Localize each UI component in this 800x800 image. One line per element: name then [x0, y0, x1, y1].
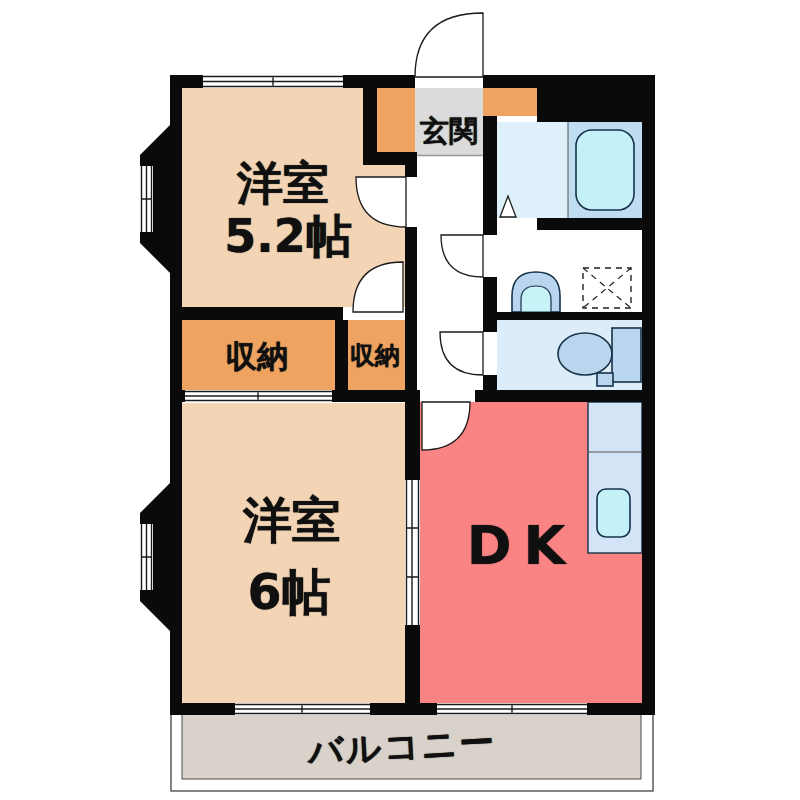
wall-bottom-c [587, 703, 655, 715]
kitchen-sink [597, 489, 630, 537]
wall-hall-right-b [483, 277, 497, 332]
wall-bottom-a [170, 703, 235, 715]
wall-washroom-bottom [483, 312, 642, 320]
wall-hall-left-b [405, 227, 417, 307]
wall-storage-right [405, 307, 417, 390]
bathtub [576, 130, 634, 210]
vanity-basin [521, 286, 551, 312]
wall-left-lower [170, 625, 182, 715]
wall-left-mid [170, 266, 182, 488]
storage-left-label: 収納 [226, 341, 288, 372]
dk-label: DK [467, 519, 578, 573]
wall-dk-b [405, 625, 420, 703]
bedroom52-label-line1: 洋室 [237, 160, 329, 206]
wall-top-right [483, 75, 655, 88]
wall-top-mid [343, 75, 415, 88]
toilet-tank [612, 328, 641, 382]
entry-shoe-cabinet-left [377, 88, 415, 152]
floor-plan: 洋室 5.2帖 玄関 収納 収納 洋室 6帖 DK バルコニー [0, 0, 800, 800]
entry-shoe-cabinet-right [483, 88, 537, 116]
wall-storage-divider [335, 320, 348, 390]
dk-door-sill [420, 390, 475, 402]
entry-door-swing [415, 13, 483, 77]
bedroom6-label-line1: 洋室 [243, 496, 341, 545]
washroom-door-leaf [483, 235, 497, 277]
floor-plan-drawing [0, 0, 800, 800]
bedroom-6-floor [182, 403, 405, 703]
wall-storage-top [170, 307, 343, 320]
bathroom-door-sill [497, 218, 537, 230]
wall-bottom-b [370, 703, 437, 715]
wall-hall-right-c [483, 375, 497, 390]
wall-mid-c [475, 390, 642, 402]
toilet-handle [597, 373, 613, 386]
bedroom52-label-line2: 5.2帖 [224, 213, 352, 259]
wall-right [642, 75, 655, 715]
wall-entry-stub [363, 152, 417, 165]
wall-hall-right-a [483, 116, 497, 235]
wall-mid-a [170, 390, 185, 402]
balcony-label: バルコニー [307, 725, 497, 770]
bedroom6-label-line2: 6帖 [247, 568, 330, 617]
wall-block-top-right [537, 88, 655, 122]
storage-right-label: 収納 [350, 343, 400, 368]
wall-hall-left-a [405, 165, 417, 177]
bedroom52-door-leaf [405, 177, 417, 227]
entry-label: 玄関 [420, 117, 478, 146]
wall-dk-a [405, 402, 420, 480]
toilet-door-leaf [483, 332, 497, 375]
wall-mid-b [332, 390, 420, 402]
wall-bath-bottom [537, 218, 642, 230]
wall-entry-left [363, 75, 377, 152]
wall-left-upper [170, 75, 182, 130]
washing-machine-space [583, 268, 631, 308]
toilet-bowl [558, 333, 612, 375]
